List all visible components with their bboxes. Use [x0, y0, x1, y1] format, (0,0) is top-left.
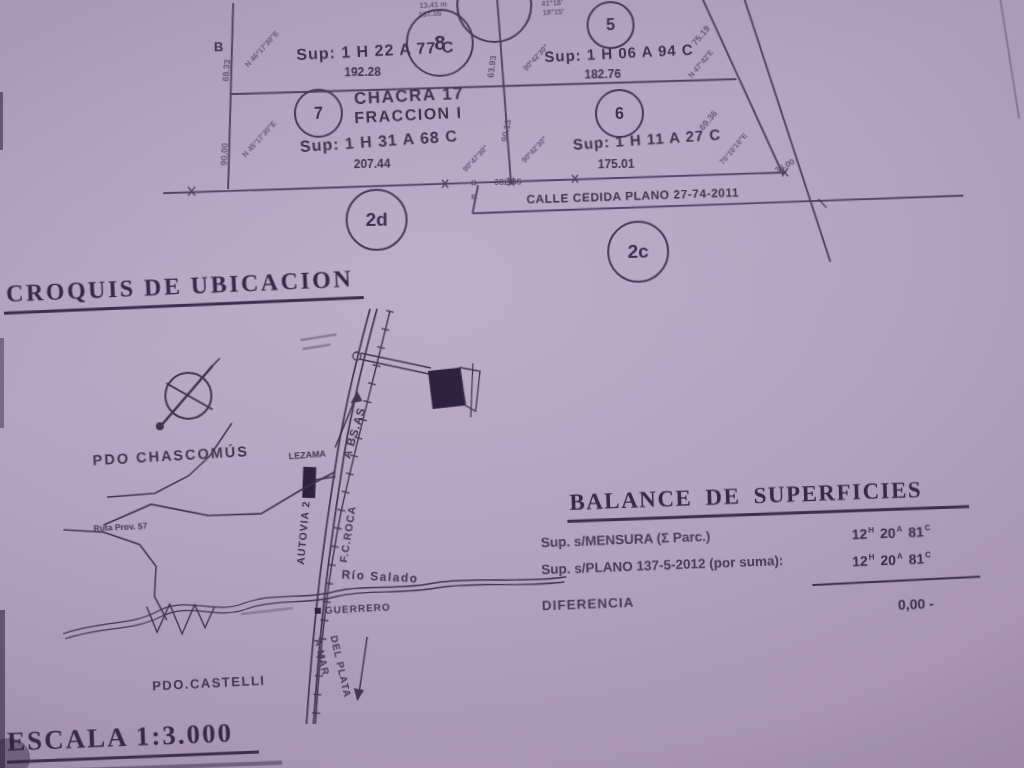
balance-row-3-value: 0,00 -: [898, 595, 934, 612]
tiny-note-smudge: [300, 334, 336, 349]
zone-2c-label: 2c: [627, 241, 648, 263]
unit-c: C: [925, 523, 931, 532]
station-marker: [315, 608, 321, 614]
calle-measurement: 382.45: [494, 177, 522, 187]
zone-2d-label: 2d: [365, 209, 388, 231]
value-a: 20: [880, 552, 896, 569]
value-a: 20: [880, 525, 896, 542]
value-c: 81: [908, 551, 924, 568]
measurement-label: 90.00: [219, 143, 230, 166]
document-content: 8 5 7 6 2d 2c Sup: 1 H 22 A 77 C 192.28 …: [0, 0, 1024, 768]
mdp-arrowhead: [354, 688, 364, 701]
photo-edge-shadow: [0, 92, 3, 150]
balance-row-2-value: 12H 20A 81C: [852, 550, 933, 569]
parcel-5-length: 182.76: [584, 67, 621, 82]
route-57-road: [63, 528, 166, 622]
unit-h: H: [868, 526, 874, 535]
value-ha: 12: [852, 553, 868, 570]
surveyed-property-block: [428, 367, 466, 409]
unit-c: C: [925, 550, 931, 559]
calle-point-mark: B: [471, 178, 477, 187]
measurement-label: 18°15': [542, 7, 564, 17]
photo-of-survey-document: 8 5 7 6 2d 2c Sup: 1 H 22 A 77 C 192.28 …: [0, 0, 1024, 768]
tiny-note-smudge: [241, 608, 293, 614]
unit-a: A: [896, 524, 902, 533]
point-b-label: B: [214, 39, 224, 54]
parcel-6-number: 6: [615, 104, 624, 122]
compass-rose-icon: [156, 358, 221, 429]
value-c: 81: [908, 524, 924, 541]
parcel-7-number: 7: [314, 104, 323, 122]
unit-a: A: [897, 551, 903, 560]
parcel-8-length: 192.28: [344, 65, 381, 80]
bsas-arrowhead: [350, 391, 362, 403]
calle-point-mark: B: [471, 192, 477, 201]
parcel-6-length: 175.01: [598, 157, 635, 172]
measurement-label: 68.33: [220, 59, 232, 82]
balance-row-1-value: 12H 20A 81C: [851, 523, 932, 542]
parcel-7-length: 207.44: [354, 157, 391, 172]
unit-h: H: [868, 553, 874, 562]
value-ha: 12: [851, 526, 867, 543]
photo-edge-shadow: [0, 338, 4, 428]
difference-value: 0,00 -: [898, 595, 934, 612]
parcel-5-number: 5: [606, 16, 615, 34]
measurement-label: 137.05: [418, 9, 442, 20]
croquis-linework: [0, 0, 1024, 768]
